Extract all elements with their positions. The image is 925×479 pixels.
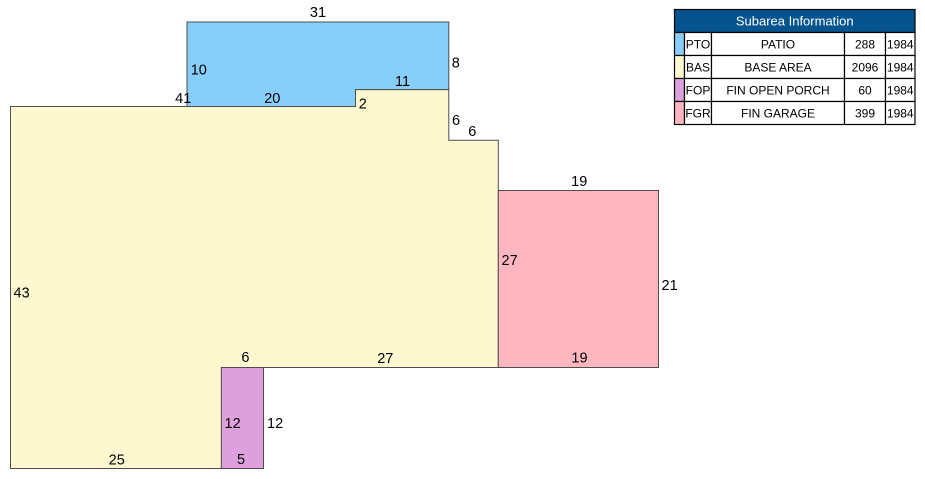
svg-text:FIN OPEN PORCH: FIN OPEN PORCH xyxy=(726,84,829,98)
svg-text:BAS: BAS xyxy=(686,61,710,75)
svg-text:25: 25 xyxy=(109,453,125,469)
svg-text:12: 12 xyxy=(225,416,241,432)
svg-text:31: 31 xyxy=(310,5,326,21)
svg-text:21: 21 xyxy=(662,278,678,294)
svg-text:399: 399 xyxy=(855,107,875,121)
svg-text:10: 10 xyxy=(191,63,207,79)
svg-text:BASE AREA: BASE AREA xyxy=(744,61,811,75)
svg-text:6: 6 xyxy=(452,113,460,129)
svg-text:PATIO: PATIO xyxy=(761,38,795,52)
svg-text:43: 43 xyxy=(14,286,30,302)
svg-text:20: 20 xyxy=(264,91,280,107)
svg-text:5: 5 xyxy=(237,452,245,468)
svg-text:1984: 1984 xyxy=(887,61,914,75)
svg-text:27: 27 xyxy=(502,253,518,269)
svg-text:6: 6 xyxy=(241,350,249,366)
svg-text:2096: 2096 xyxy=(852,61,879,75)
svg-text:1984: 1984 xyxy=(887,107,914,121)
svg-text:1984: 1984 xyxy=(887,38,914,52)
svg-text:FIN GARAGE: FIN GARAGE xyxy=(741,107,815,121)
svg-text:288: 288 xyxy=(855,38,875,52)
svg-text:1984: 1984 xyxy=(887,84,914,98)
svg-text:11: 11 xyxy=(395,74,410,90)
svg-text:27: 27 xyxy=(377,351,393,367)
svg-text:12: 12 xyxy=(267,416,283,432)
svg-text:2: 2 xyxy=(359,97,367,113)
svg-text:41: 41 xyxy=(175,91,191,107)
svg-text:60: 60 xyxy=(858,84,872,98)
svg-text:6: 6 xyxy=(468,124,476,140)
svg-text:Subarea Information: Subarea Information xyxy=(736,14,854,29)
svg-text:19: 19 xyxy=(571,351,587,367)
svg-text:FOP: FOP xyxy=(686,84,711,98)
svg-text:PTO: PTO xyxy=(686,38,710,52)
svg-text:8: 8 xyxy=(452,56,460,72)
svg-text:FGR: FGR xyxy=(685,107,711,121)
svg-text:19: 19 xyxy=(571,174,587,190)
